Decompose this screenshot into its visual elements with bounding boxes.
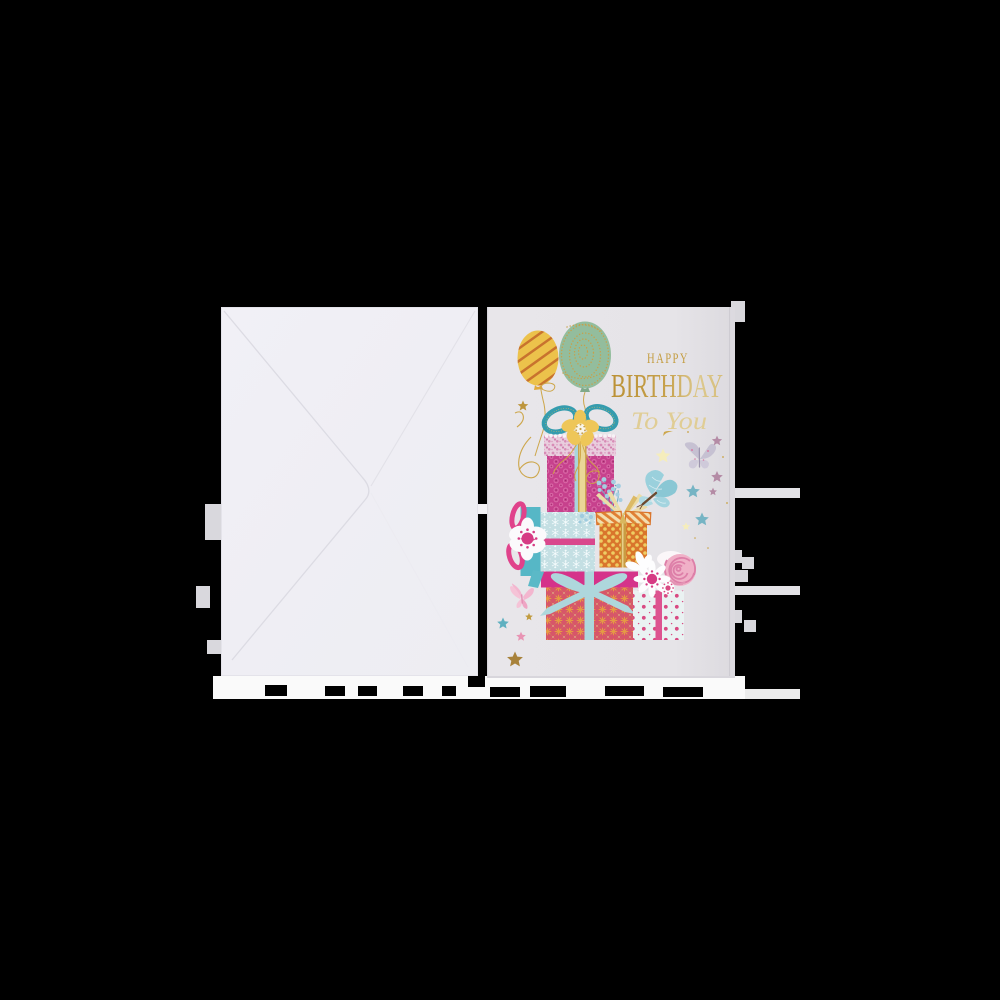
- svg-text:HAPPY: HAPPY: [647, 351, 689, 367]
- svg-text:To You: To You: [631, 408, 707, 435]
- svg-text:BIRTHDAY: BIRTHDAY: [611, 368, 723, 405]
